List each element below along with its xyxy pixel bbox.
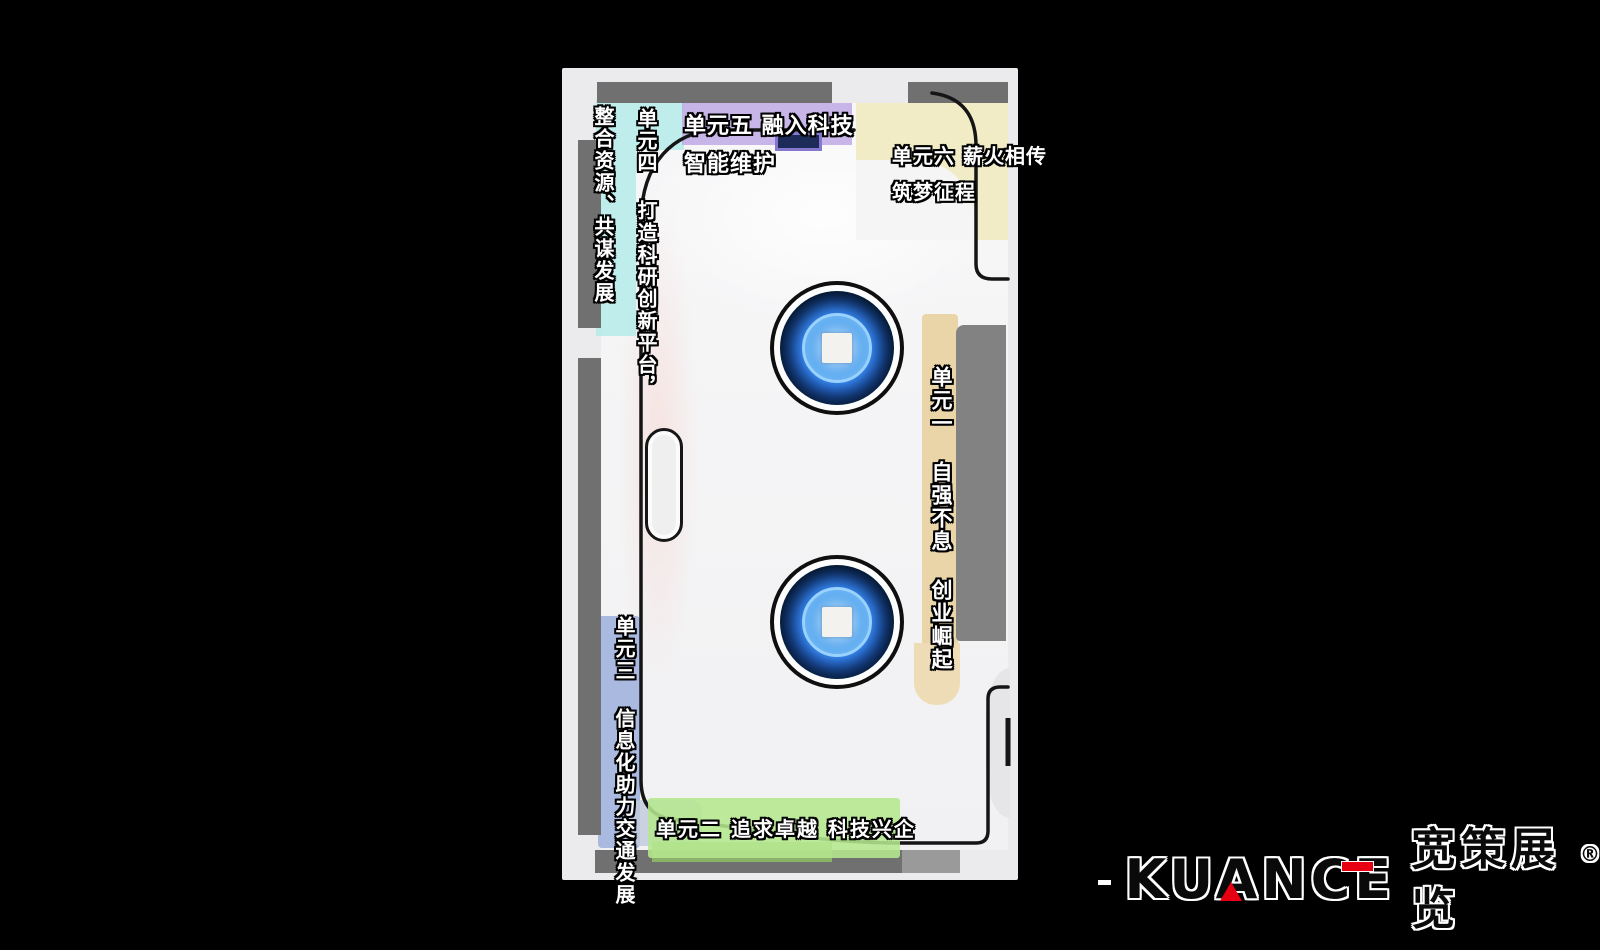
logo-brand-letters: KUANCE: [1125, 848, 1396, 911]
pod-glow: [780, 565, 894, 679]
label-unit6-line2: 筑梦征程: [892, 176, 976, 205]
label-unit5-line2: 智能维护: [684, 146, 776, 178]
logo-brand-text: KUANCE: [1125, 850, 1396, 910]
logo-dash: [1098, 880, 1111, 885]
label-unit6-line1: 单元六 薪火相传: [892, 140, 1047, 169]
pod-center-square: [822, 333, 852, 363]
label-unit4: 单元四 打造科研创新平台，: [632, 108, 661, 398]
pod-center-square: [822, 607, 852, 637]
pod-glow: [780, 291, 894, 405]
label-theme: 整合资源、共谋发展: [589, 106, 618, 304]
interactive-pod-bottom: [770, 555, 904, 689]
logo-chinese-text: 宽策展览: [1411, 820, 1578, 940]
logo-e-red-bar-icon: [1341, 861, 1374, 872]
interactive-pod-top: [770, 281, 904, 415]
label-unit2: 单元二 追求卓越 科技兴企: [656, 813, 916, 842]
logo-a-triangle-icon: [1220, 882, 1242, 901]
exhibition-floor-plan: 整合资源、共谋发展 单元四 打造科研创新平台， 单元五 融入科技 智能维护 单元…: [562, 68, 1018, 880]
label-unit3: 单元三 信息化助力交通发展: [610, 616, 639, 906]
brand-logo: KUANCE 宽策展览 ®: [1098, 848, 1600, 912]
label-unit5-line1: 单元五 融入科技: [684, 108, 854, 140]
pod-ring: [802, 313, 872, 383]
door-capsule-inner: [652, 435, 676, 535]
registered-trademark-icon: ®: [1580, 842, 1600, 866]
pod-ring: [802, 587, 872, 657]
door-capsule: [645, 428, 683, 542]
label-unit1: 单元一 自强不息 创业崛起: [926, 366, 956, 671]
